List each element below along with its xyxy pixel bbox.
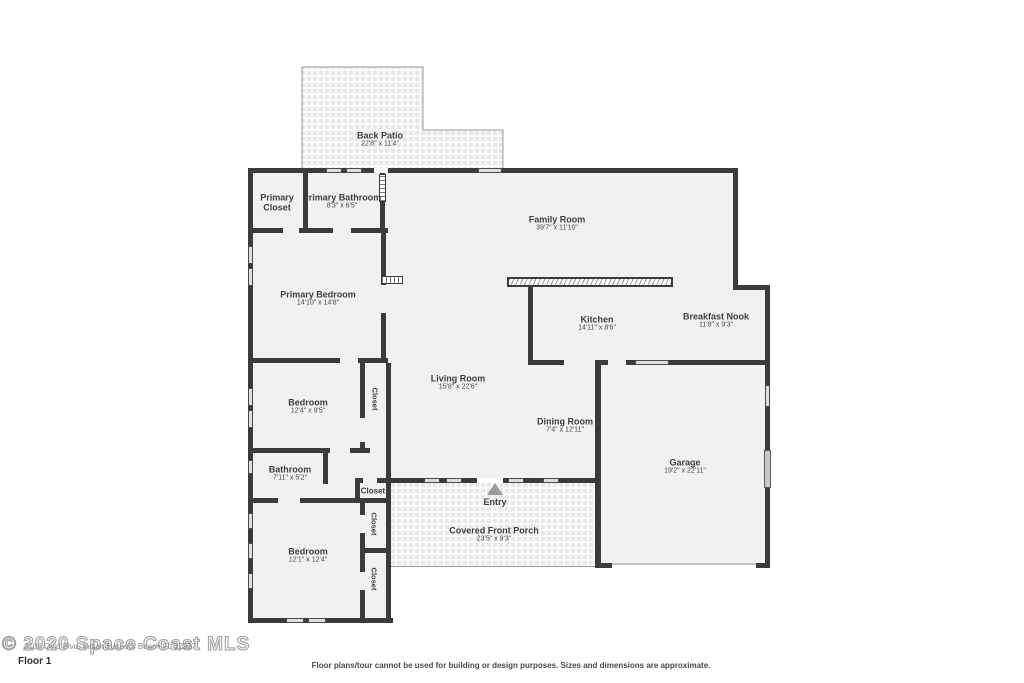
room-name: Garage — [664, 458, 706, 468]
room-name: Primary Closet — [251, 193, 303, 214]
room-name: Breakfast Nook — [683, 312, 749, 322]
door-opening — [278, 498, 300, 503]
window — [248, 246, 253, 264]
window — [346, 168, 362, 173]
room-dims: 15'8" x 22'6" — [431, 384, 486, 392]
wall — [248, 448, 370, 453]
room-name: Bedroom — [288, 547, 328, 557]
window — [286, 618, 304, 623]
window — [508, 478, 524, 483]
closet-label: Closet — [361, 486, 385, 495]
window — [248, 513, 253, 529]
garage-door — [612, 563, 756, 565]
closet-label: Closet — [371, 388, 380, 411]
bedroom-door — [381, 276, 403, 284]
window — [248, 410, 253, 428]
back-patio-area — [300, 64, 508, 172]
floorplan-page: { "floorplan": { "title": "Floor 1", "ro… — [0, 0, 1024, 683]
room-label-front-porch: Covered Front Porch 23'5" x 9'3" — [449, 526, 539, 545]
room-dims: 14'11" x 8'6" — [578, 325, 616, 333]
room-dims: 7'11" x 5'2" — [269, 475, 312, 483]
wall — [248, 498, 391, 503]
room-label-dining-room: Dining Room 7'4" x 12'11" — [537, 417, 593, 436]
garage-side-door — [764, 450, 771, 488]
wall — [733, 168, 738, 290]
door-opening — [283, 228, 299, 233]
door-opening — [360, 418, 365, 442]
window — [478, 168, 502, 173]
room-label-primary-bedroom: Primary Bedroom 14'10" x 14'8" — [280, 290, 356, 309]
window — [248, 573, 253, 589]
door-opening — [360, 572, 365, 590]
wall — [386, 363, 391, 483]
room-label-primary-bathroom: Primary Bathroom 8'3" x 6'5" — [303, 193, 382, 212]
room-dims: 8'3" x 6'5" — [303, 203, 382, 211]
window — [248, 543, 253, 559]
door-opening — [360, 515, 365, 533]
wall — [595, 360, 601, 568]
room-dims: 22'8" x 11'4" — [357, 141, 403, 149]
room-name: Kitchen — [578, 315, 616, 325]
wall — [528, 287, 533, 365]
room-label-kitchen: Kitchen 14'11" x 8'6" — [578, 315, 616, 334]
address-watermark: 2106 Ovid Blvd, Indian Harbour Beach FL … — [24, 642, 196, 651]
room-label-bedroom-1: Bedroom 12'4" x 9'5" — [288, 398, 328, 417]
room-dims: 12'4" x 9'5" — [288, 408, 328, 416]
window — [635, 360, 669, 365]
window — [308, 618, 326, 623]
room-name: Primary Bedroom — [280, 290, 356, 300]
room-dims: 7'4" x 12'11" — [537, 427, 593, 435]
wall — [360, 548, 391, 553]
window — [326, 168, 342, 173]
door-opening — [608, 360, 626, 365]
closet-label: Closet — [370, 513, 379, 536]
window — [446, 478, 462, 483]
room-name: Covered Front Porch — [449, 526, 539, 536]
door-opening — [340, 358, 358, 363]
room-label-garage: Garage 19'2" x 22'11" — [664, 458, 706, 477]
room-label-bathroom: Bathroom 7'11" x 5'2" — [269, 465, 312, 484]
room-name: Family Room — [529, 215, 586, 225]
kitchen-counter — [507, 277, 673, 287]
door-opening — [374, 168, 388, 173]
room-name: Primary Bathroom — [303, 193, 382, 203]
window — [543, 478, 559, 483]
wall — [765, 285, 770, 568]
room-label-breakfast-nook: Breakfast Nook 11'8" x 9'3" — [683, 312, 749, 331]
room-dims: 14'10" x 14'8" — [280, 300, 356, 308]
room-name: Dining Room — [537, 417, 593, 427]
room-dims: 12'1" x 12'4" — [288, 557, 328, 565]
room-dims: 23'5" x 9'3" — [449, 536, 539, 544]
wall — [733, 285, 770, 290]
room-name: Bedroom — [288, 398, 328, 408]
wall — [248, 228, 388, 233]
wall — [248, 358, 388, 363]
door-opening — [330, 448, 350, 453]
floor-label: Floor 1 — [18, 656, 51, 667]
door-opening — [333, 228, 351, 233]
door-opening — [323, 484, 328, 498]
entry-arrow-icon — [487, 483, 503, 495]
room-name: Closet — [361, 486, 385, 495]
closet-label: Closet — [370, 568, 379, 591]
room-dims: 19'2" x 22'11" — [664, 468, 706, 476]
window — [765, 385, 770, 407]
room-label-family-room: Family Room 39'7" x 11'10" — [529, 215, 586, 234]
room-label-back-patio: Back Patio 22'8" x 11'4" — [357, 131, 403, 150]
wall — [528, 360, 564, 365]
room-dims: 39'7" x 11'10" — [529, 225, 586, 233]
window — [248, 388, 253, 406]
disclaimer-text: Floor plans/tour cannot be used for buil… — [312, 661, 711, 670]
room-label-bedroom-2: Bedroom 12'1" x 12'4" — [288, 547, 328, 566]
room-label-primary-closet: Primary Closet — [251, 193, 303, 214]
room-name: Bathroom — [269, 465, 312, 475]
window — [248, 460, 253, 474]
room-name: Living Room — [431, 374, 486, 384]
room-dims: 11'8" x 9'3" — [683, 322, 749, 330]
window — [424, 478, 440, 483]
window — [248, 268, 253, 286]
room-name: Back Patio — [357, 131, 403, 141]
room-label-living-room: Living Room 15'8" x 22'6" — [431, 374, 486, 393]
room-label-entry: Entry — [483, 497, 506, 507]
room-name: Entry — [483, 497, 506, 507]
door-opening — [381, 285, 386, 313]
door-opening — [363, 478, 377, 483]
